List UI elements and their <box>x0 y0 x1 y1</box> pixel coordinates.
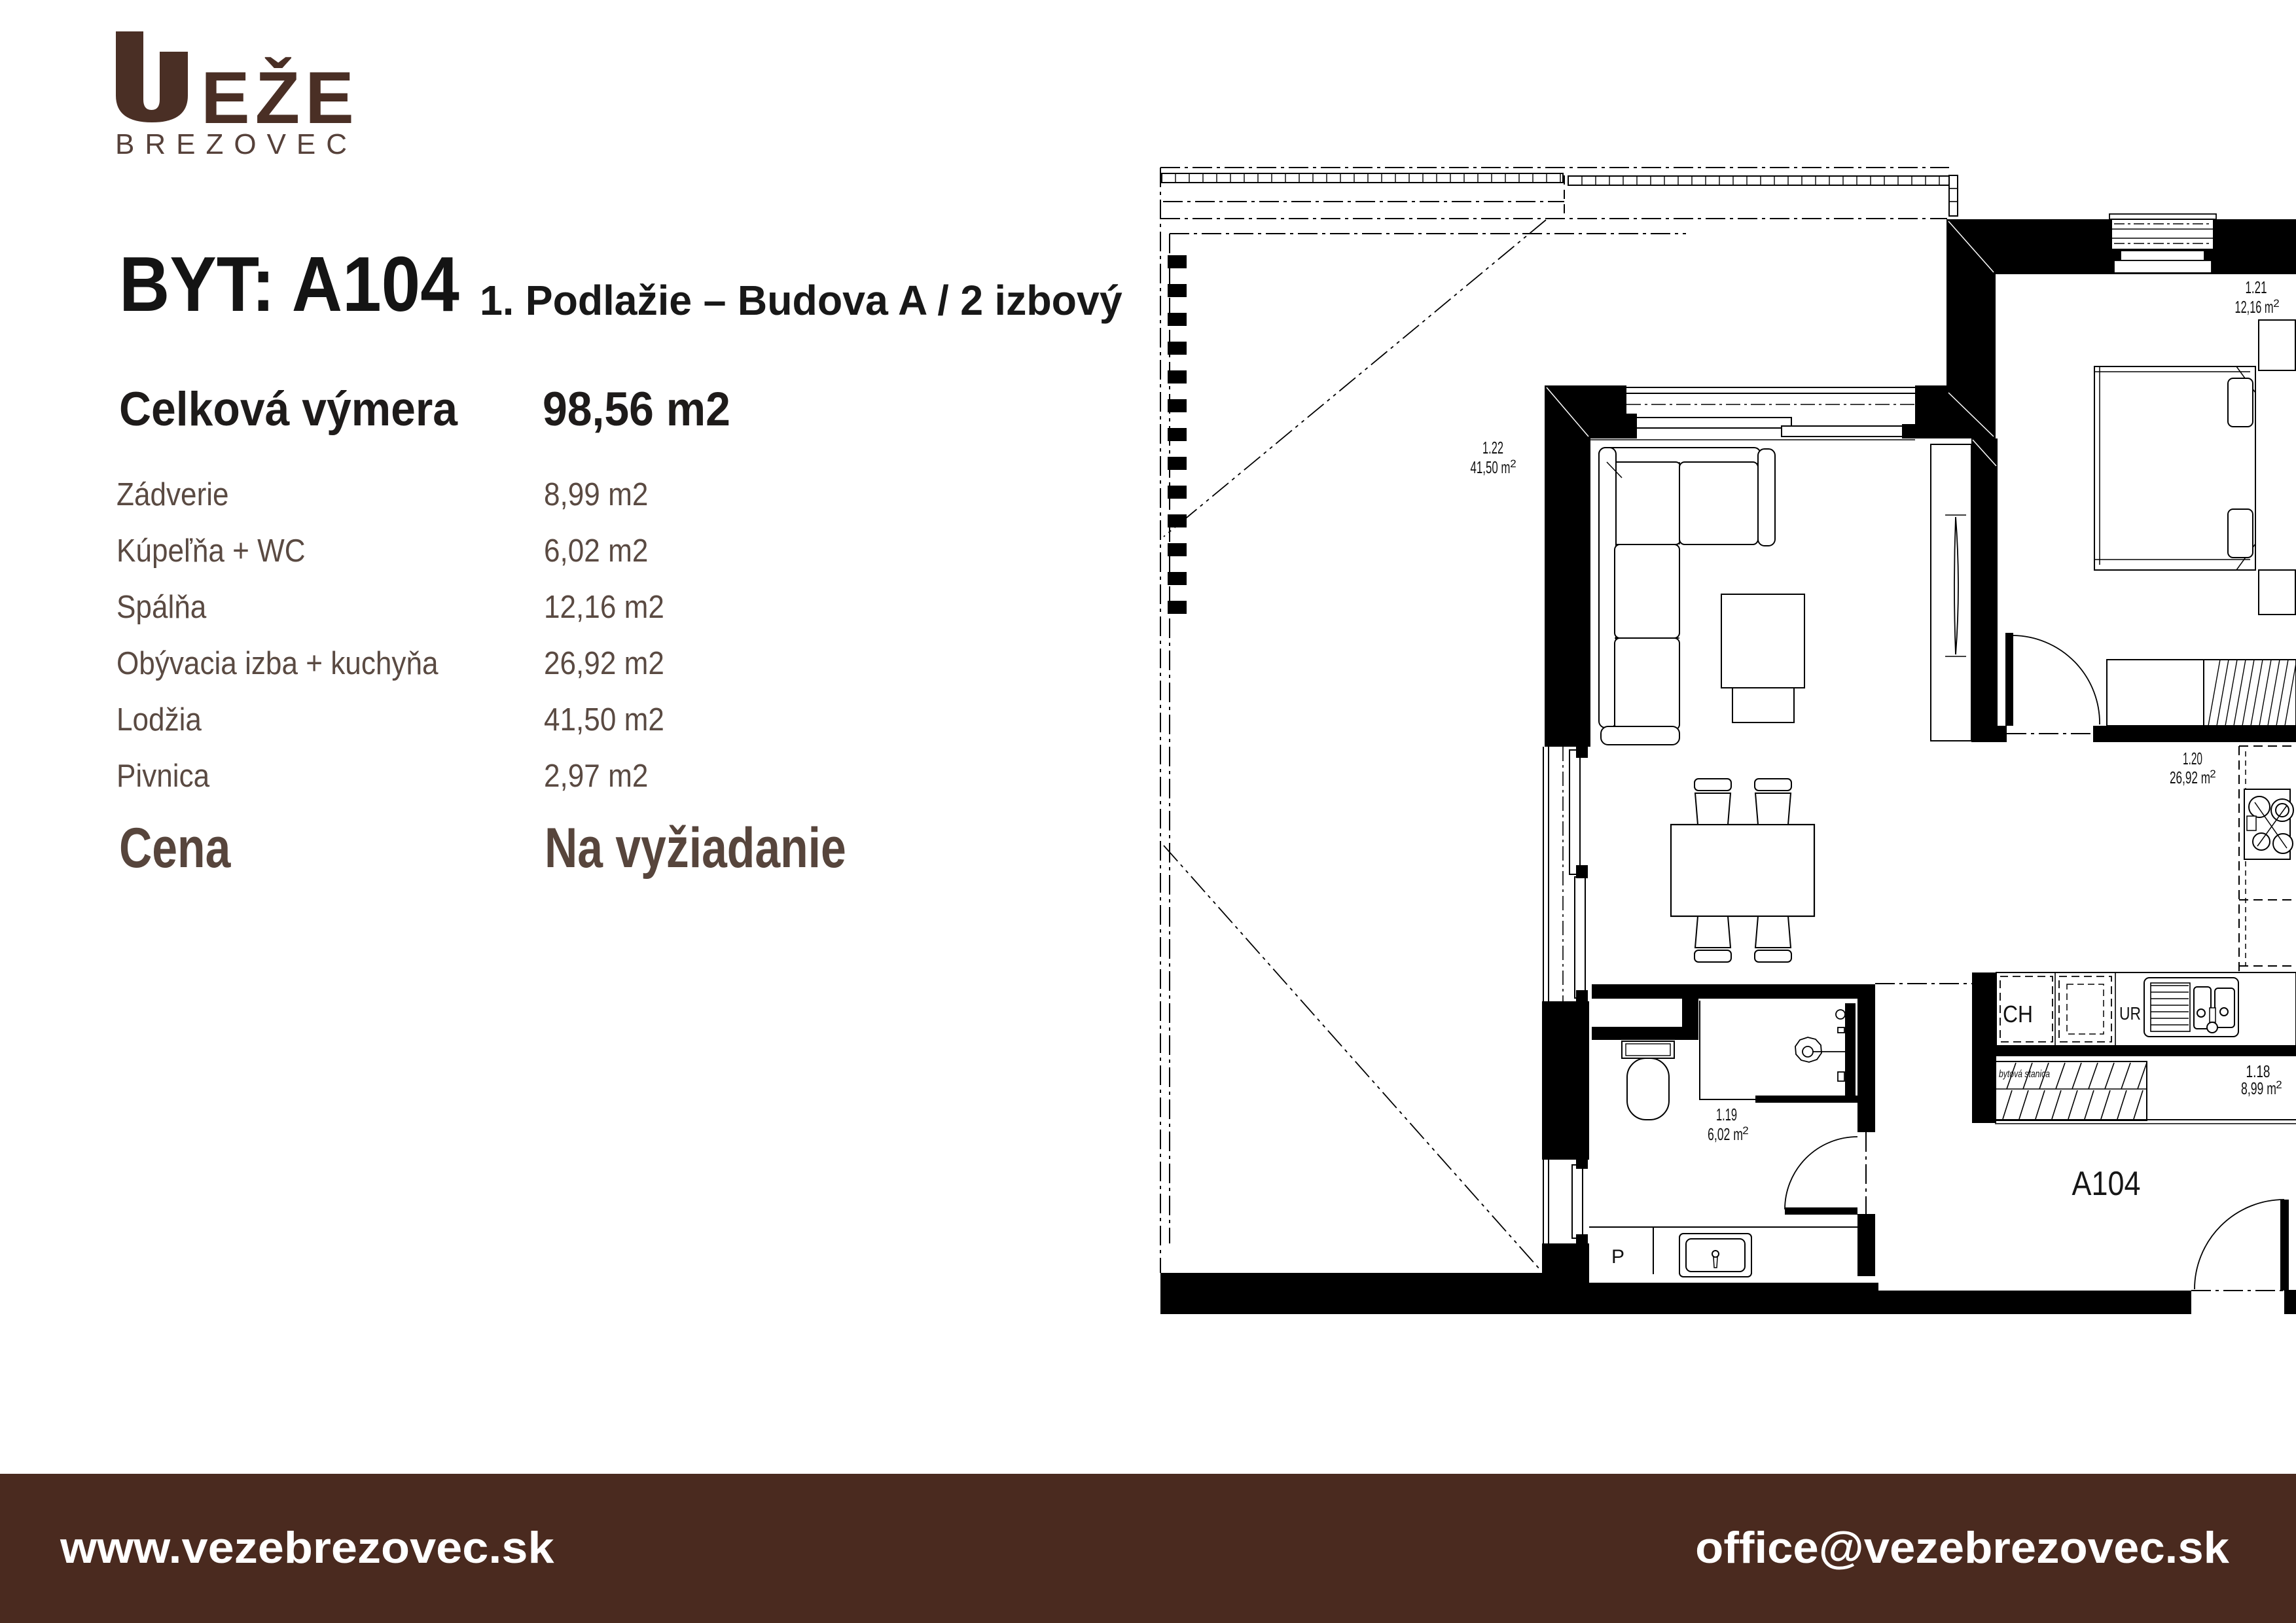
svg-text:A104: A104 <box>2072 1165 2141 1203</box>
svg-text:1.20: 1.20 <box>2183 749 2202 768</box>
svg-text:8,99 m: 8,99 m <box>2241 1079 2276 1098</box>
svg-text:26,92 m: 26,92 m <box>2170 768 2210 787</box>
svg-text:6,02 m: 6,02 m <box>1708 1124 1743 1144</box>
svg-text:2: 2 <box>1742 1124 1748 1137</box>
svg-text:CH: CH <box>2003 1001 2033 1027</box>
svg-text:1.22: 1.22 <box>1482 438 1503 457</box>
svg-text:bytová stanica: bytová stanica <box>1999 1069 2050 1080</box>
svg-text:1.19: 1.19 <box>1716 1105 1737 1124</box>
svg-text:EŽE: EŽE <box>201 57 359 139</box>
svg-text:P: P <box>1611 1246 1624 1268</box>
svg-text:2: 2 <box>2273 297 2279 310</box>
svg-text:2: 2 <box>2276 1079 2282 1091</box>
svg-text:2: 2 <box>1510 457 1516 470</box>
svg-text:2: 2 <box>2210 768 2215 780</box>
svg-text:12,16 m: 12,16 m <box>2235 297 2274 317</box>
svg-text:UR: UR <box>2119 1003 2141 1024</box>
svg-text:BREZOVEC: BREZOVEC <box>115 128 357 160</box>
svg-text:41,50 m: 41,50 m <box>1471 457 1511 477</box>
svg-text:1.21: 1.21 <box>2246 277 2267 297</box>
